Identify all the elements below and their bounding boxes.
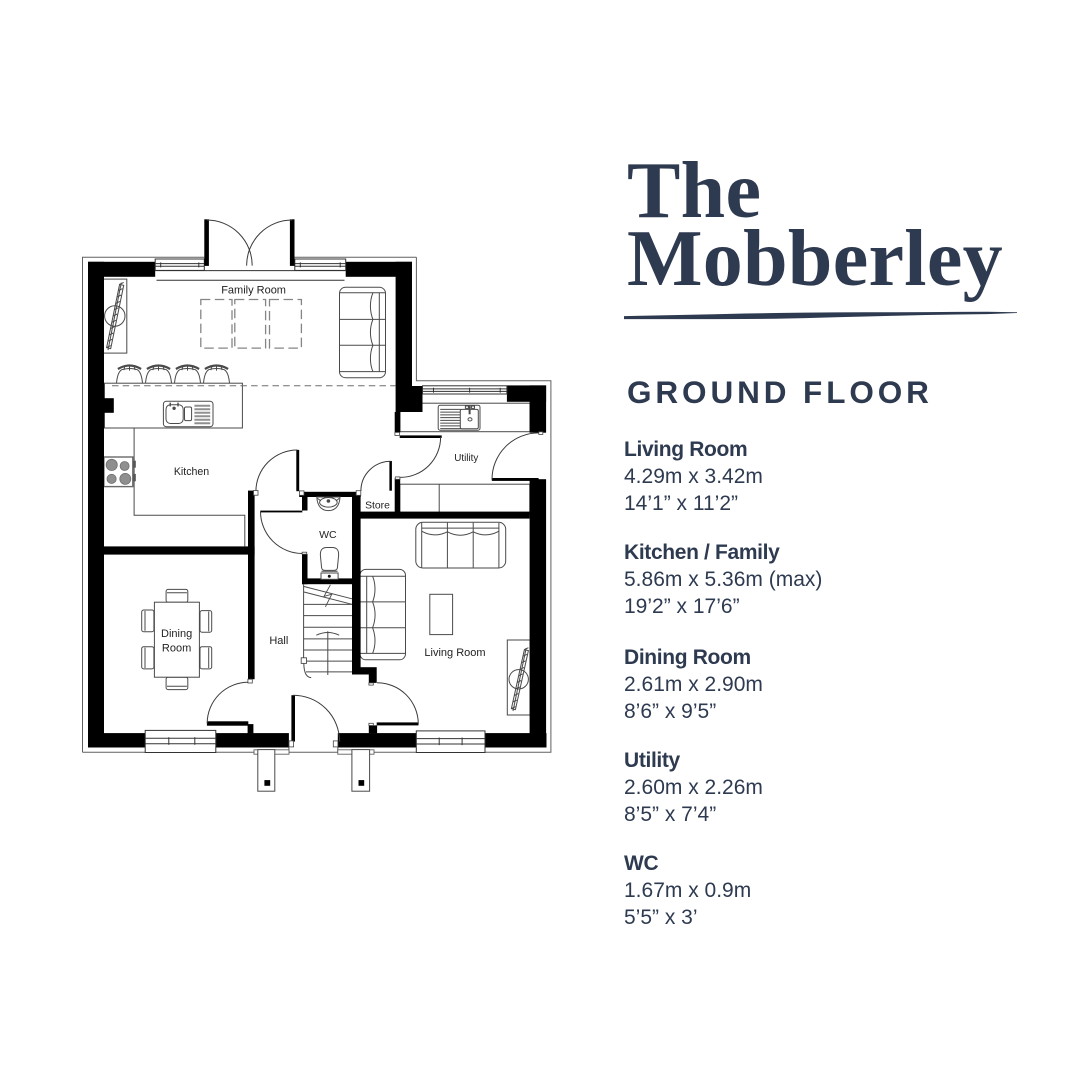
svg-text:Hall: Hall	[269, 635, 288, 647]
svg-text:Utility: Utility	[454, 453, 478, 464]
svg-text:Room: Room	[162, 643, 191, 655]
svg-text:Store: Store	[365, 501, 390, 512]
svg-text:Living Room: Living Room	[424, 647, 485, 659]
svg-text:Kitchen: Kitchen	[174, 466, 209, 478]
svg-text:WC: WC	[319, 529, 337, 541]
svg-text:Family Room: Family Room	[221, 284, 286, 296]
svg-text:Dining: Dining	[161, 628, 192, 640]
